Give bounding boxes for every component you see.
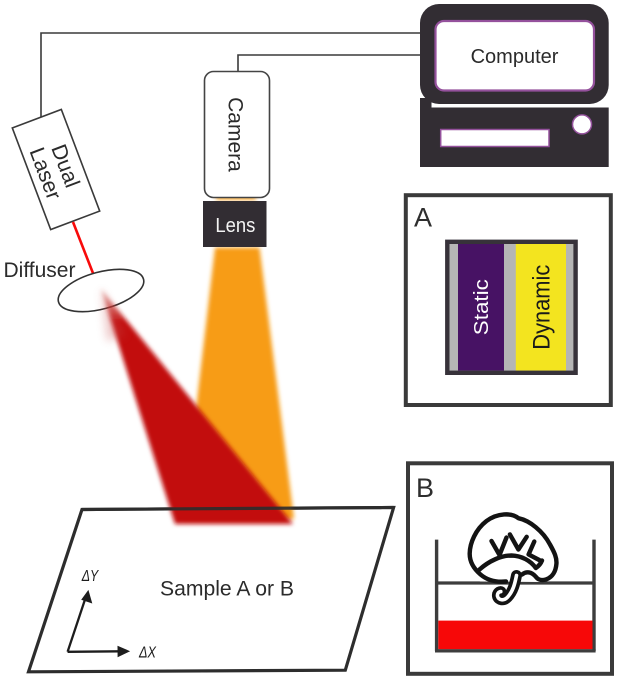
svg-text:Lens: Lens	[215, 215, 255, 237]
svg-text:Static: Static	[471, 279, 493, 335]
svg-text:Sample A or B: Sample A or B	[160, 578, 294, 601]
svg-text:Dynamic: Dynamic	[528, 265, 555, 350]
svg-text:ΔX: ΔX	[138, 645, 157, 662]
svg-text:B: B	[416, 473, 434, 503]
svg-text:ΔY: ΔY	[81, 568, 99, 585]
svg-text:Diffuser: Diffuser	[4, 259, 76, 282]
svg-text:A: A	[414, 203, 432, 233]
svg-text:Computer: Computer	[471, 46, 559, 68]
svg-text:Camera: Camera	[224, 97, 247, 172]
